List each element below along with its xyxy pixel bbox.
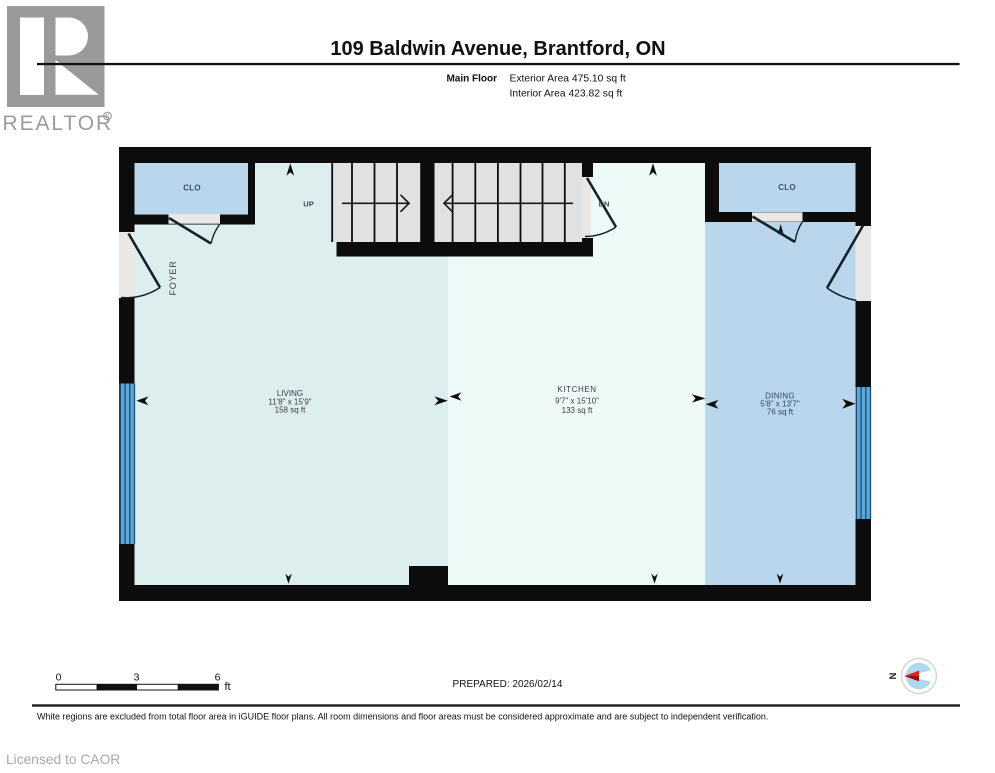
- svg-text:158 sq ft: 158 sq ft: [275, 405, 306, 414]
- svg-text:133 sq ft: 133 sq ft: [562, 406, 593, 415]
- svg-text:White regions are excluded fro: White regions are excluded from total fl…: [37, 712, 768, 722]
- svg-text:76 sq ft: 76 sq ft: [767, 408, 794, 417]
- svg-text:REALTOR: REALTOR: [3, 112, 114, 135]
- svg-text:DN: DN: [599, 200, 610, 209]
- svg-text:Licensed to CAOR: Licensed to CAOR: [6, 752, 120, 767]
- svg-text:CLO: CLO: [183, 184, 201, 193]
- svg-text:CLO: CLO: [778, 183, 796, 192]
- svg-text:3: 3: [134, 672, 140, 684]
- svg-text:KITCHEN: KITCHEN: [557, 385, 596, 394]
- svg-text:FOYER: FOYER: [168, 260, 178, 295]
- svg-text:ft: ft: [225, 681, 231, 693]
- svg-text:N: N: [888, 672, 899, 679]
- svg-text:Main Floor: Main Floor: [446, 74, 497, 85]
- svg-text:9'7" x 15'10": 9'7" x 15'10": [555, 397, 599, 406]
- svg-text:UP: UP: [303, 200, 313, 209]
- svg-text:6: 6: [215, 672, 221, 684]
- svg-text:0: 0: [56, 672, 62, 684]
- svg-text:PREPARED: 2026/02/14: PREPARED: 2026/02/14: [453, 679, 563, 690]
- svg-text:R: R: [106, 114, 110, 120]
- svg-text:Interior Area 423.82 sq ft: Interior Area 423.82 sq ft: [510, 89, 623, 100]
- svg-text:109 Baldwin Avenue, Brantford,: 109 Baldwin Avenue, Brantford, ON: [330, 38, 665, 60]
- svg-text:Exterior Area 475.10 sq ft: Exterior Area 475.10 sq ft: [510, 74, 626, 85]
